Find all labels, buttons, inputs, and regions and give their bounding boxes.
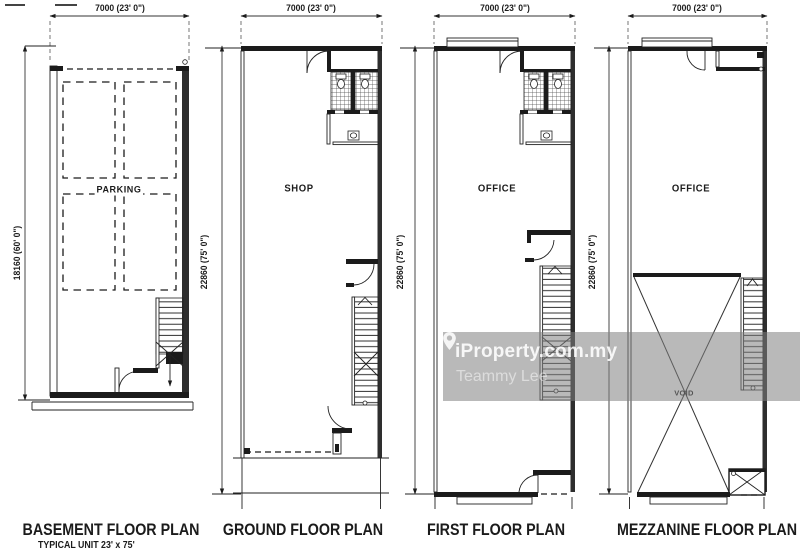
ground-top-wall	[241, 46, 382, 51]
dimension-label-mezzanine-width: 7000 (23' 0")	[672, 3, 722, 13]
mezzanine-front-room	[687, 51, 765, 71]
mezzanine-bottom-wall	[637, 492, 730, 497]
first-toilets	[500, 51, 571, 145]
mezzanine-right-wall	[763, 51, 768, 492]
first-bottom-wall	[434, 492, 538, 497]
dimension-label-basement-width: 7000 (23' 0")	[95, 3, 145, 13]
title-first: FIRST FLOOR PLAN	[427, 520, 565, 540]
first-front-ledge	[447, 38, 518, 47]
room-label-parking: PARKING	[95, 185, 144, 196]
dimension-label-first-depth: 22860 (75' 0")	[395, 235, 405, 290]
wc-icon	[336, 74, 346, 79]
subtitle-basement: TYPICAL UNIT 23' x 75'	[38, 539, 135, 551]
first-rear-ledge	[457, 497, 532, 504]
room-label-office-mezzanine: OFFICE	[670, 184, 712, 195]
ground-apron	[233, 458, 389, 493]
title-mezzanine: MEZZANINE FLOOR PLAN	[617, 520, 797, 540]
ground-left-wall	[241, 51, 244, 458]
basement-plan-drawing	[18, 16, 193, 410]
room-label-office-first: OFFICE	[476, 184, 518, 195]
floor-plans-sheet: 7000 (23' 0") 7000 (23' 0") 7000 (23' 0"…	[0, 0, 800, 557]
title-ground: GROUND FLOOR PLAN	[223, 520, 383, 540]
ground-stair	[346, 259, 378, 405]
dimension-label-ground-depth: 22860 (75' 0")	[199, 235, 209, 290]
mezzanine-rear-ledge	[650, 497, 727, 504]
dimension-label-basement-depth: 18160 (60' 0")	[12, 226, 22, 281]
location-pin-icon	[443, 332, 456, 350]
basement-left-wall	[50, 66, 57, 396]
title-basement: BASEMENT FLOOR PLAN	[23, 520, 200, 540]
basement-stair	[156, 298, 183, 386]
basement-bottom-wall	[50, 392, 189, 398]
ground-toilets	[307, 51, 378, 145]
first-left-wall	[434, 51, 437, 492]
mezzanine-plan-drawing	[594, 16, 767, 509]
ground-plan-drawing	[205, 16, 389, 509]
wc-icon	[529, 74, 539, 79]
watermark-agent: Teammy Lee	[456, 368, 800, 386]
dimension-label-ground-width: 7000 (23' 0")	[286, 3, 336, 13]
watermark: iProperty.com.my Teammy Lee	[443, 332, 800, 401]
wc-icon	[553, 74, 563, 79]
dimension-label-first-width: 7000 (23' 0")	[480, 3, 530, 13]
wc-icon	[360, 74, 370, 79]
mezzanine-left-wall	[628, 51, 631, 492]
void-edge-beam	[633, 273, 741, 277]
first-plan-drawing	[400, 16, 575, 509]
room-label-shop: SHOP	[282, 184, 315, 195]
mezzanine-front-ledge	[642, 38, 712, 47]
watermark-brand: iProperty.com.my	[455, 341, 617, 363]
mezzanine-shaft-box	[729, 469, 765, 495]
dimension-label-mezzanine-depth: 22860 (75' 0")	[587, 235, 597, 290]
